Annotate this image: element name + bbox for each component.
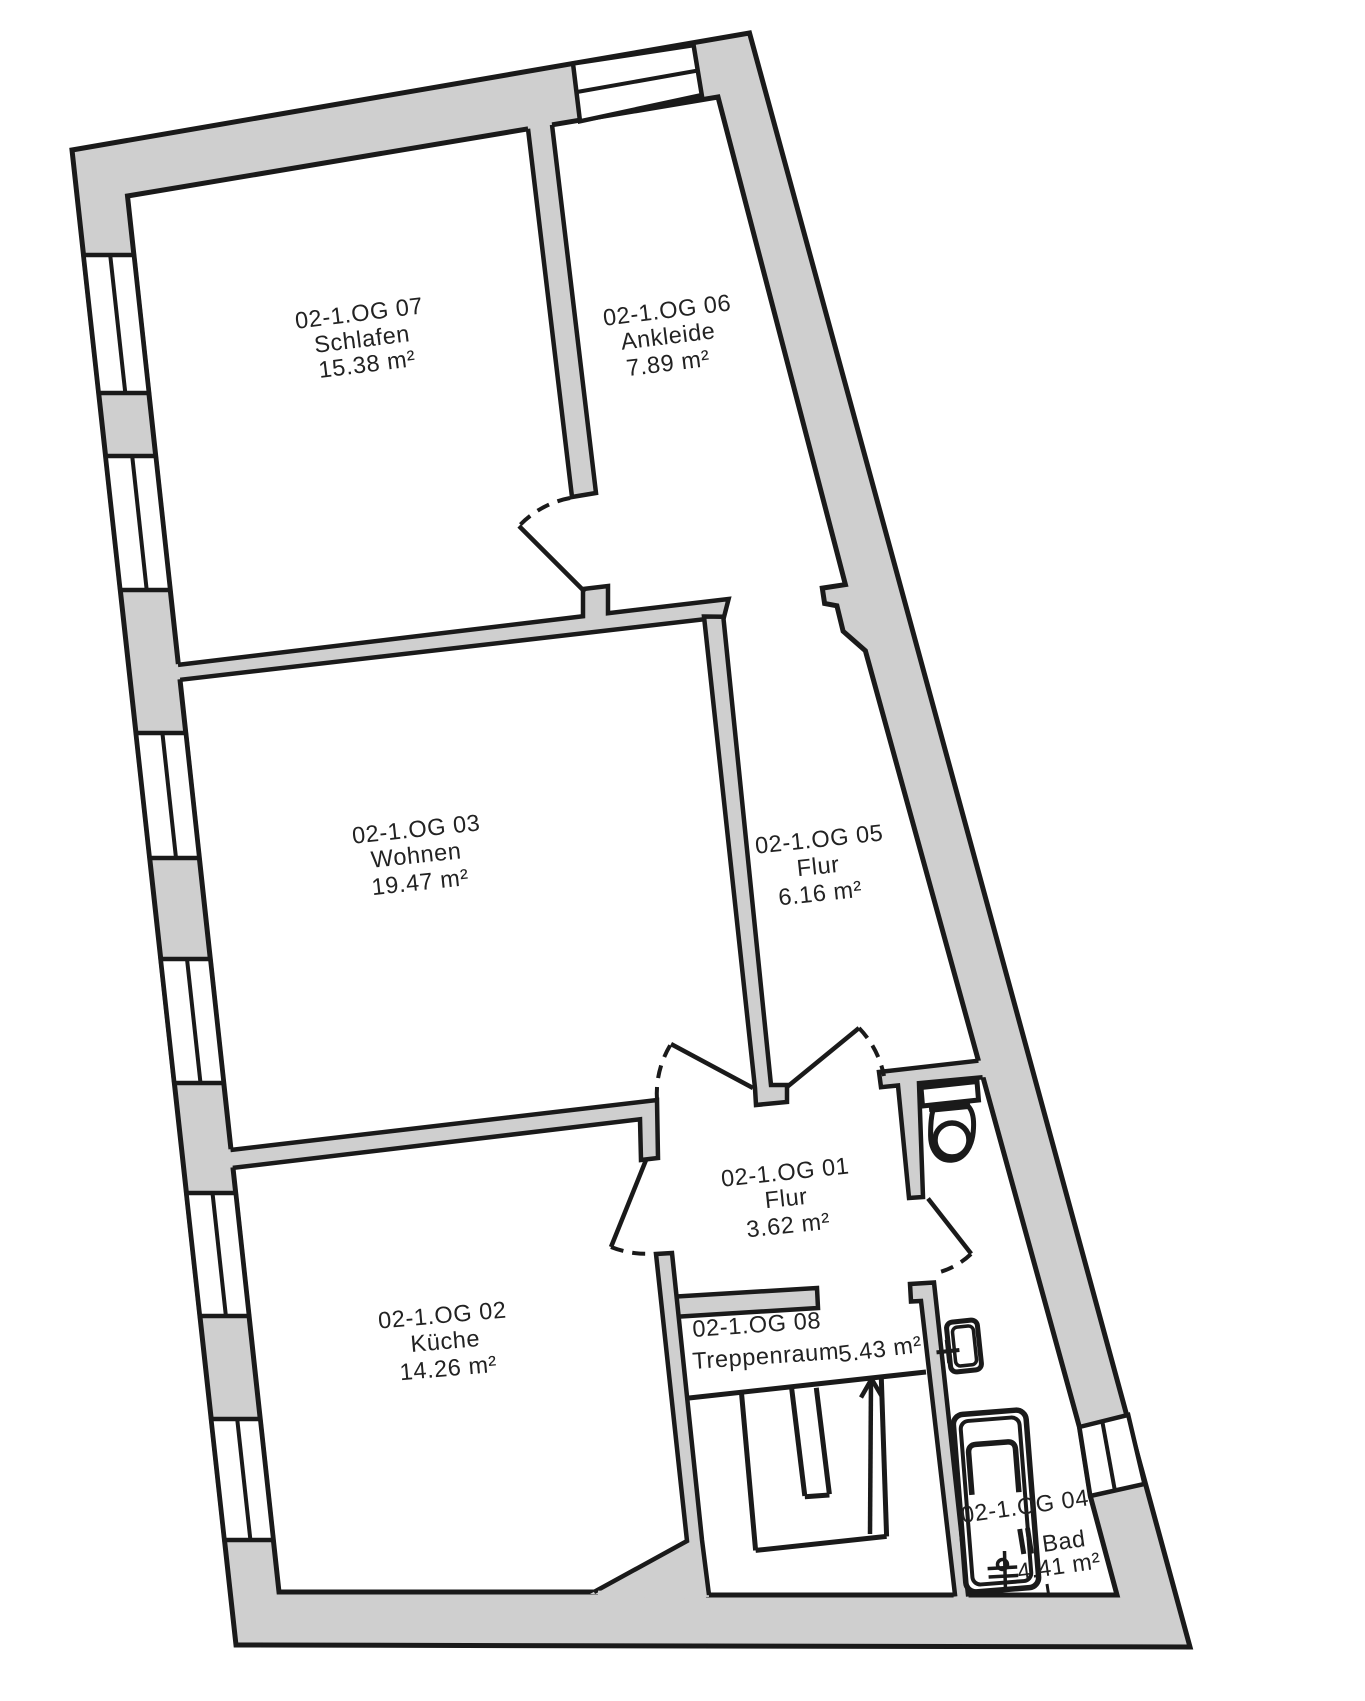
svg-text:Flur: Flur	[763, 1183, 808, 1213]
svg-text:Flur: Flur	[795, 851, 840, 881]
